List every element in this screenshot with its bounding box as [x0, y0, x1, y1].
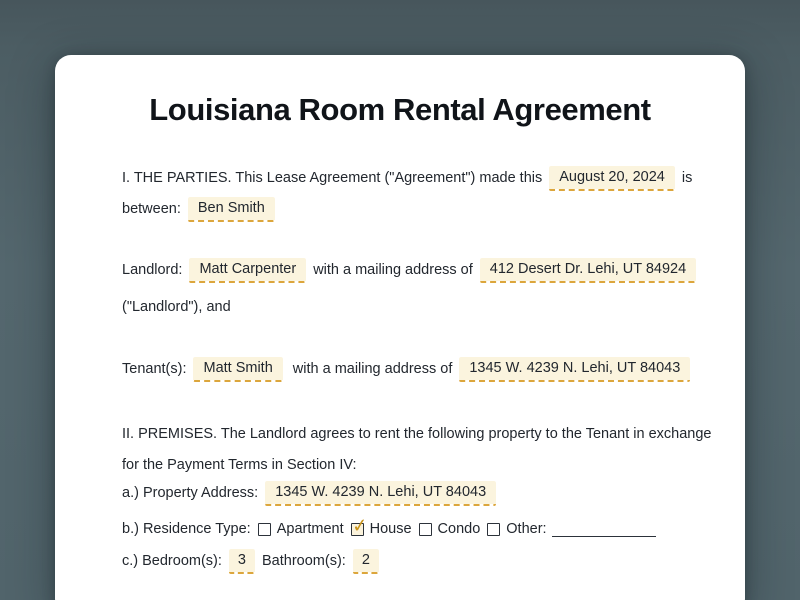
bedrooms-field[interactable]: 3 [229, 549, 255, 574]
parties-after-date-text: is [682, 170, 692, 186]
premises-intro-text: II. PREMISES. The Landlord agrees to ren… [122, 426, 712, 442]
option-label-house: House [370, 521, 412, 537]
tenant-line: Tenant(s): Matt Smith with a mailing add… [122, 356, 678, 382]
premises-line-2: for the Payment Terms in Section IV: [122, 452, 678, 478]
landlord-name-field[interactable]: Matt Carpenter [189, 258, 306, 283]
parties-line-1: I. THE PARTIES. This Lease Agreement ("A… [122, 165, 678, 191]
premises-line-1: II. PREMISES. The Landlord agrees to ren… [122, 421, 678, 447]
tenant-label: Tenant(s): [122, 361, 186, 377]
landlord-address-intro-text: with a mailing address of [313, 262, 473, 278]
tenant-address-intro-text: with a mailing address of [293, 361, 453, 377]
landlord-address-field[interactable]: 412 Desert Dr. Lehi, UT 84924 [480, 258, 696, 283]
checkbox-condo[interactable] [419, 523, 432, 536]
parties-line-2: between: Ben Smith [122, 196, 678, 222]
checkbox-other[interactable] [487, 523, 500, 536]
bathrooms-field[interactable]: 2 [353, 549, 379, 574]
residence-type-label: b.) Residence Type: [122, 521, 251, 537]
document-title: Louisiana Room Rental Agreement [122, 91, 678, 129]
rental-agreement-document: Louisiana Room Rental Agreement I. THE P… [55, 55, 745, 600]
property-address-label: a.) Property Address: [122, 485, 258, 501]
tenant-address-field[interactable]: 1345 W. 4239 N. Lehi, UT 84043 [459, 357, 690, 382]
checkbox-apartment[interactable] [258, 523, 271, 536]
landlord-closing-text: ("Landlord"), and [122, 299, 231, 315]
option-label-other: Other: [506, 521, 546, 537]
property-address-line: a.) Property Address: 1345 W. 4239 N. Le… [122, 480, 678, 506]
agreement-date-field[interactable]: August 20, 2024 [549, 166, 675, 191]
bathrooms-label: Bathroom(s): [262, 553, 346, 569]
landlord-line-1: Landlord: Matt Carpenter with a mailing … [122, 257, 678, 283]
bedrooms-label: c.) Bedroom(s): [122, 553, 222, 569]
between-label: between: [122, 201, 181, 217]
parties-intro-text: I. THE PARTIES. This Lease Agreement ("A… [122, 170, 542, 186]
option-label-apartment: Apartment [277, 521, 344, 537]
other-blank-line[interactable] [552, 521, 656, 537]
landlord-line-2: ("Landlord"), and [122, 294, 678, 320]
rooms-line: c.) Bedroom(s): 3 Bathroom(s): 2 [122, 548, 678, 574]
premises-intro-text-2: for the Payment Terms in Section IV: [122, 457, 357, 473]
landlord-label: Landlord: [122, 262, 182, 278]
residence-type-line: b.) Residence Type: Apartment House Cond… [122, 516, 678, 542]
tenant-name-field[interactable]: Matt Smith [193, 357, 282, 382]
option-label-condo: Condo [438, 521, 481, 537]
checkbox-house[interactable] [351, 523, 364, 536]
property-address-field[interactable]: 1345 W. 4239 N. Lehi, UT 84043 [265, 481, 496, 506]
party-name-field[interactable]: Ben Smith [188, 197, 275, 222]
